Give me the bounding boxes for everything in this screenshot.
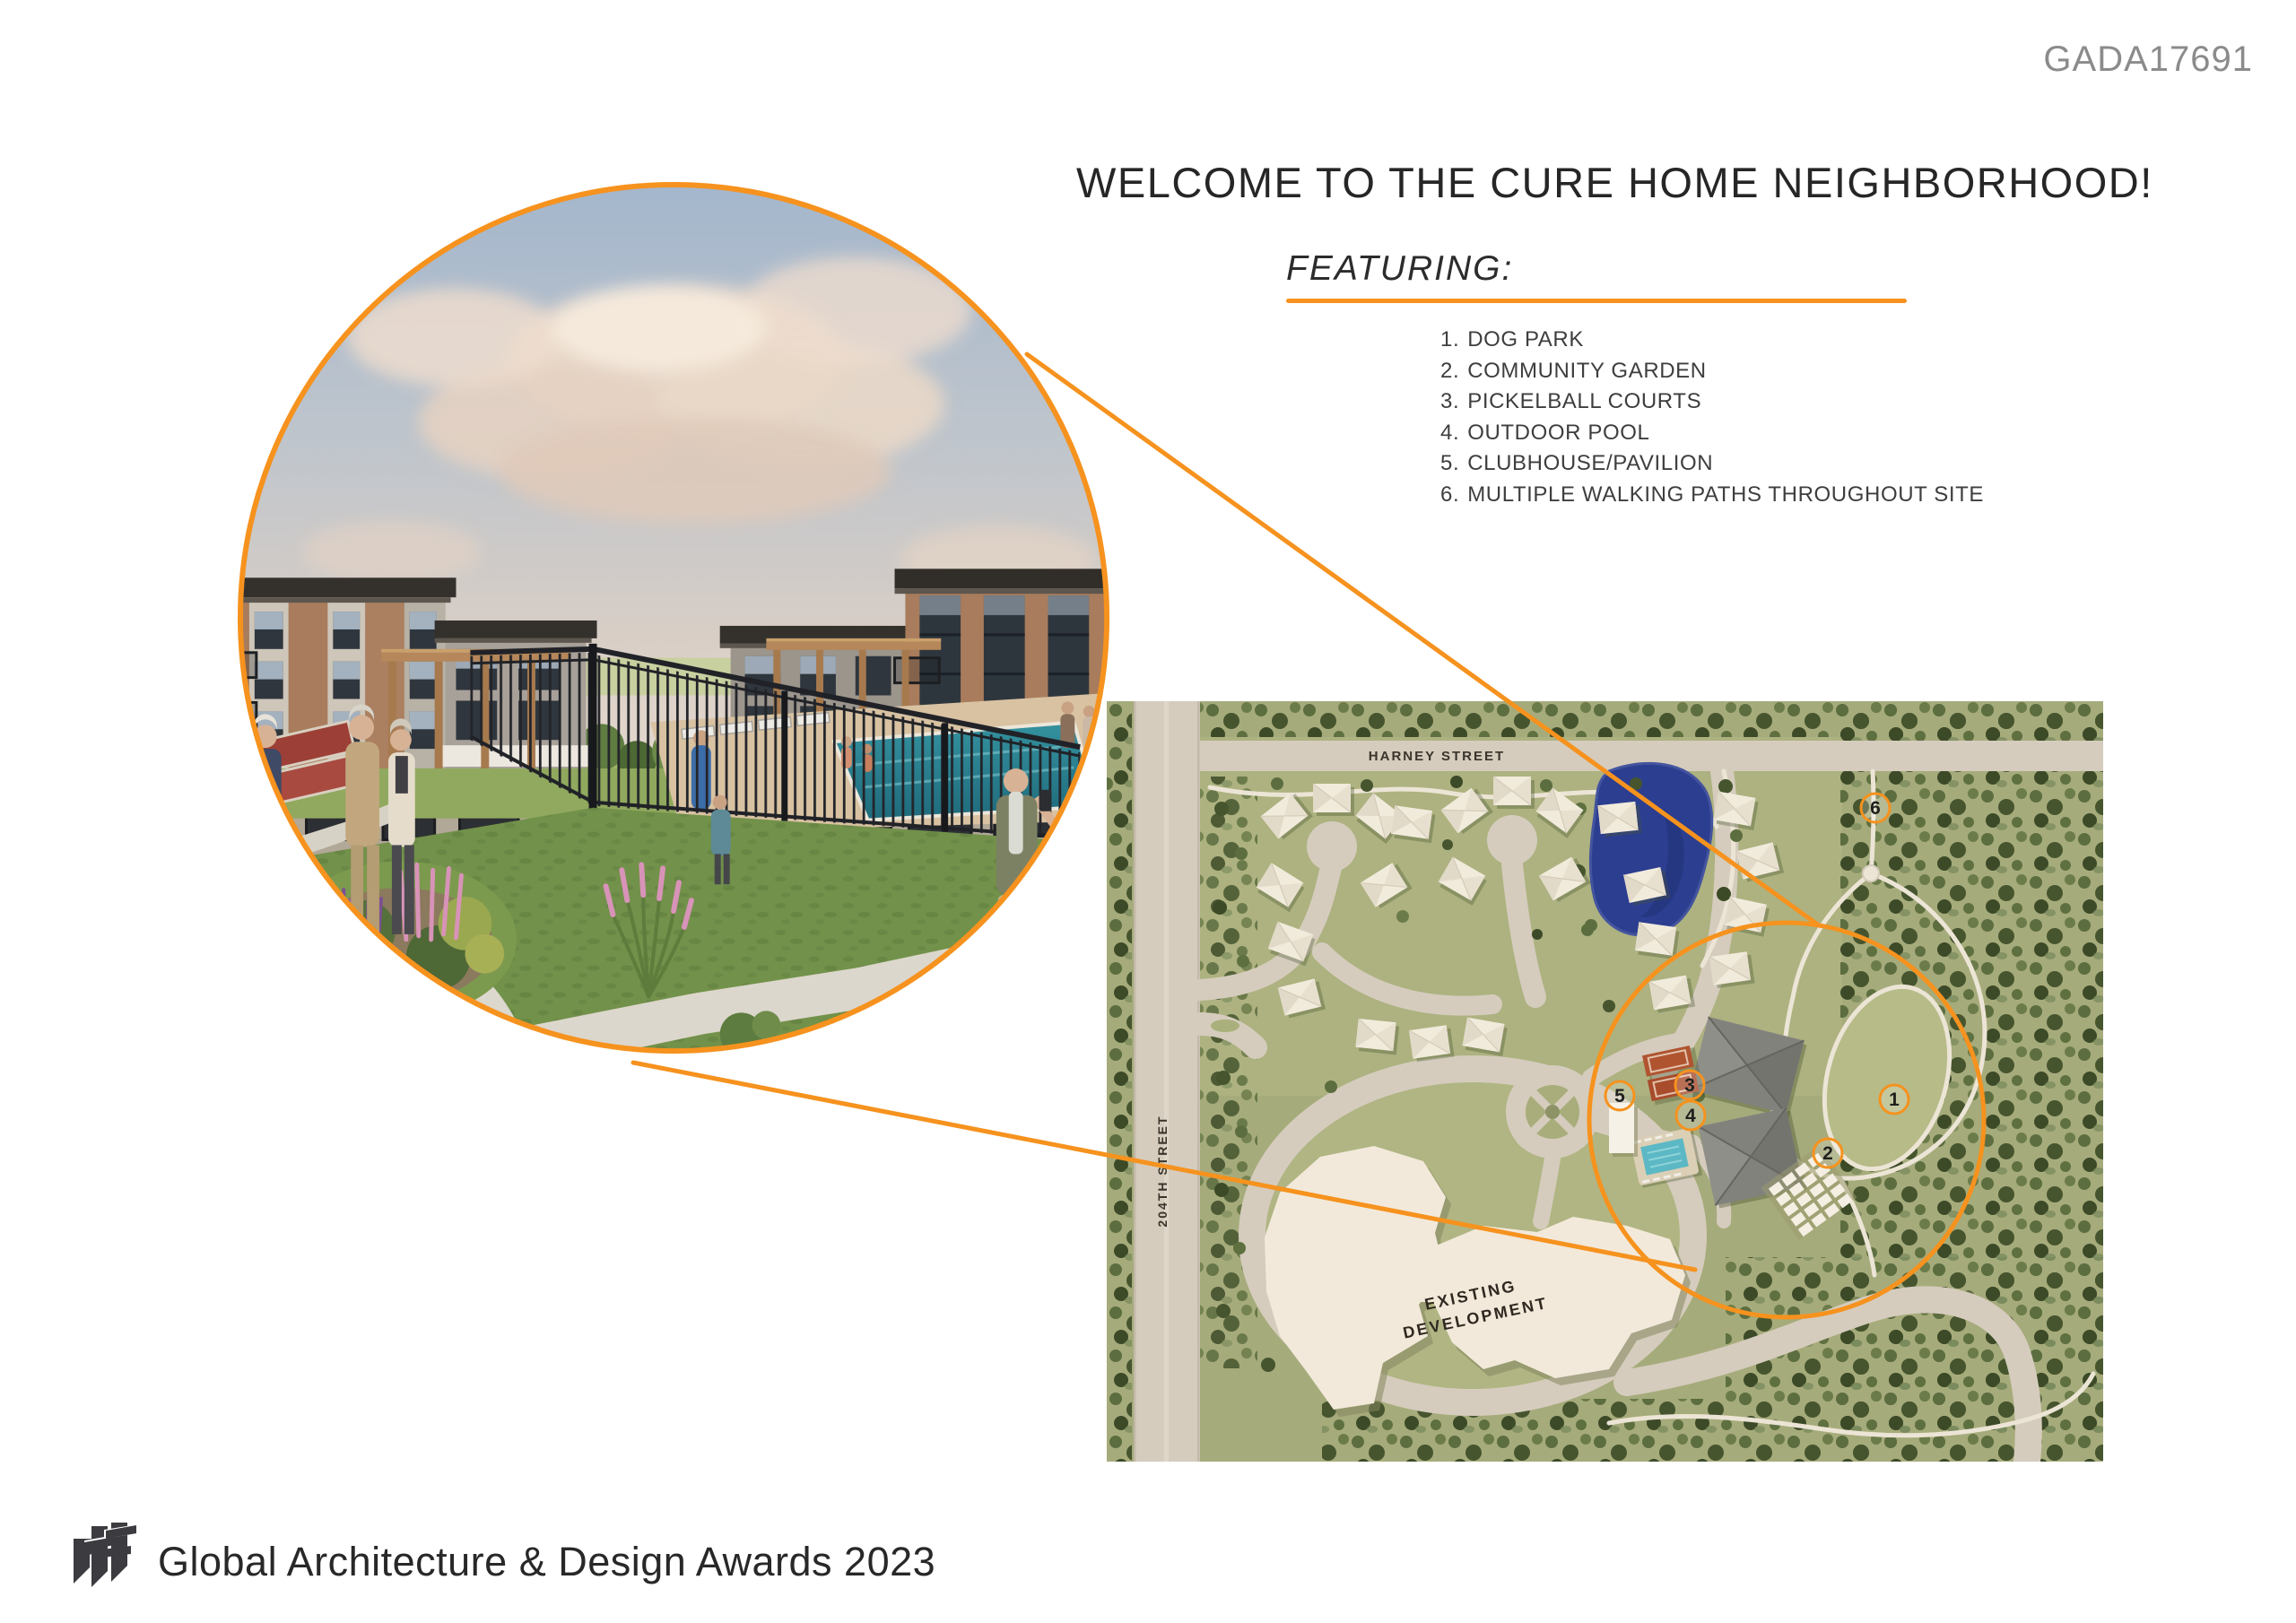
map-marker-5: 5 [1605, 1081, 1634, 1110]
featuring-label: FEATURING: [1286, 249, 1513, 289]
street-label-204th: 204TH STREET [1155, 1115, 1170, 1227]
page-code: GADA17691 [2043, 39, 2253, 80]
rtf-logo-icon [52, 1521, 138, 1603]
feature-item: 1.DOG PARK [1440, 325, 1984, 356]
map-marker-1: 1 [1880, 1085, 1909, 1114]
svg-text:3: 3 [1684, 1075, 1695, 1096]
footer: Global Architecture & Design Awards 2023 [52, 1521, 935, 1603]
map-marker-6: 6 [1861, 794, 1890, 822]
path-node [1863, 865, 1879, 881]
map-marker-4: 4 [1676, 1101, 1705, 1130]
feature-label: MULTIPLE WALKING PATHS THROUGHOUT SITE [1467, 482, 1984, 507]
svg-text:1: 1 [1889, 1089, 1900, 1110]
feature-item: 4.OUTDOOR POOL [1440, 418, 1984, 449]
page-title: WELCOME TO THE CURE HOME NEIGHBORHOOD! [1076, 158, 2153, 207]
featuring-rule [1286, 299, 1907, 303]
feature-label: CLUBHOUSE/PAVILION [1467, 451, 1713, 475]
presentation-board: GADA17691 WELCOME TO THE CURE HOME NEIGH… [0, 0, 2296, 1623]
street-label-harney: HARNEY STREET [1369, 749, 1505, 764]
feature-number: 3. [1440, 389, 1459, 413]
feature-number: 5. [1440, 451, 1459, 475]
feature-item: 5.CLUBHOUSE/PAVILION [1440, 448, 1984, 480]
map-marker-2: 2 [1813, 1139, 1842, 1167]
feature-item: 6.MULTIPLE WALKING PATHS THROUGHOUT SITE [1440, 480, 1984, 511]
feature-label: PICKELBALL COURTS [1467, 389, 1701, 413]
feature-label: COMMUNITY GARDEN [1467, 359, 1707, 383]
footer-text: Global Architecture & Design Awards 2023 [158, 1539, 935, 1585]
feature-item: 3.PICKELBALL COURTS [1440, 386, 1984, 418]
svg-text:4: 4 [1685, 1106, 1696, 1126]
rendering-circle [231, 177, 1116, 1061]
feature-list: 1.DOG PARK 2.COMMUNITY GARDEN 3.PICKELBA… [1440, 325, 1984, 511]
site-plan-map: EXISTING DEVELOPMENT [1107, 701, 2103, 1462]
feature-number: 4. [1440, 421, 1459, 445]
feature-number: 1. [1440, 327, 1459, 352]
svg-text:6: 6 [1870, 798, 1881, 819]
feature-number: 6. [1440, 482, 1459, 507]
feature-item: 2.COMMUNITY GARDEN [1440, 356, 1984, 387]
feature-number: 2. [1440, 359, 1459, 383]
map-marker-3: 3 [1675, 1071, 1704, 1099]
feature-label: DOG PARK [1467, 327, 1584, 352]
svg-text:5: 5 [1614, 1086, 1625, 1107]
feature-label: OUTDOOR POOL [1467, 421, 1649, 445]
svg-text:2: 2 [1822, 1143, 1833, 1164]
